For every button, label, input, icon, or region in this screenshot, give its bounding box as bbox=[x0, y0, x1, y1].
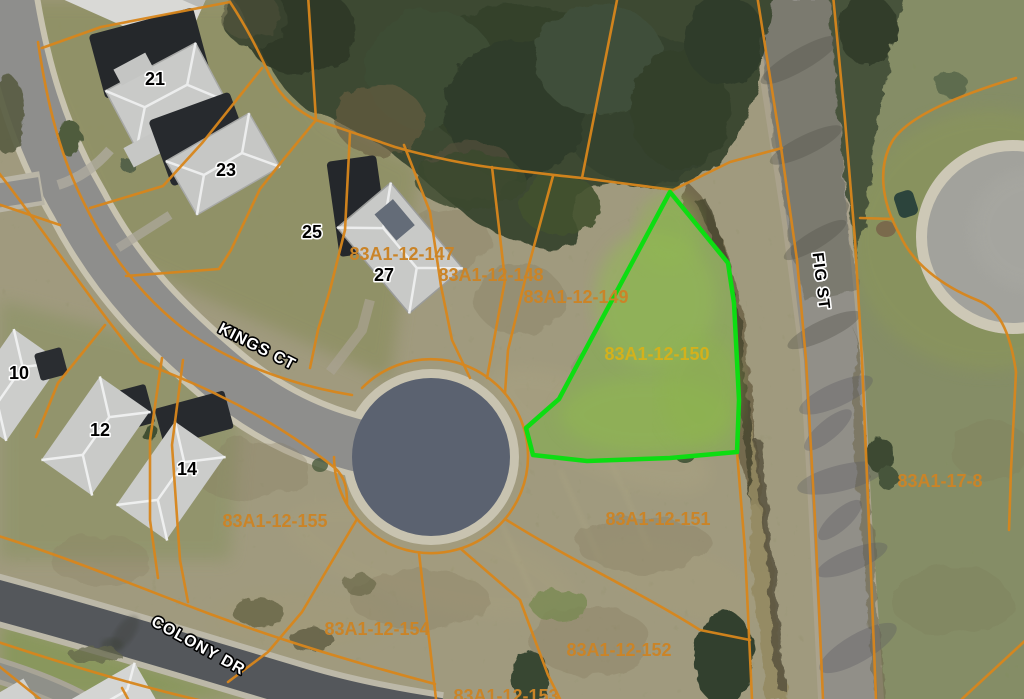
svg-text:83A1-12-149: 83A1-12-149 bbox=[523, 287, 628, 307]
svg-text:83A1-12-150: 83A1-12-150 bbox=[604, 344, 709, 364]
svg-text:83A1-12-153: 83A1-12-153 bbox=[453, 686, 558, 699]
svg-text:83A1-12-155: 83A1-12-155 bbox=[222, 511, 327, 531]
svg-text:27: 27 bbox=[374, 265, 394, 285]
svg-text:83A1-12-151: 83A1-12-151 bbox=[605, 509, 710, 529]
svg-text:25: 25 bbox=[302, 222, 322, 242]
svg-text:83A1-12-148: 83A1-12-148 bbox=[438, 265, 543, 285]
svg-text:83A1-12-154: 83A1-12-154 bbox=[324, 619, 429, 639]
svg-text:83A1-17-8: 83A1-17-8 bbox=[897, 471, 982, 491]
svg-text:14: 14 bbox=[177, 459, 197, 479]
svg-text:10: 10 bbox=[9, 363, 29, 383]
svg-text:83A1-12-147: 83A1-12-147 bbox=[349, 244, 454, 264]
svg-text:23: 23 bbox=[216, 160, 236, 180]
svg-text:83A1-12-152: 83A1-12-152 bbox=[566, 640, 671, 660]
svg-text:12: 12 bbox=[90, 420, 110, 440]
svg-text:21: 21 bbox=[145, 69, 165, 89]
